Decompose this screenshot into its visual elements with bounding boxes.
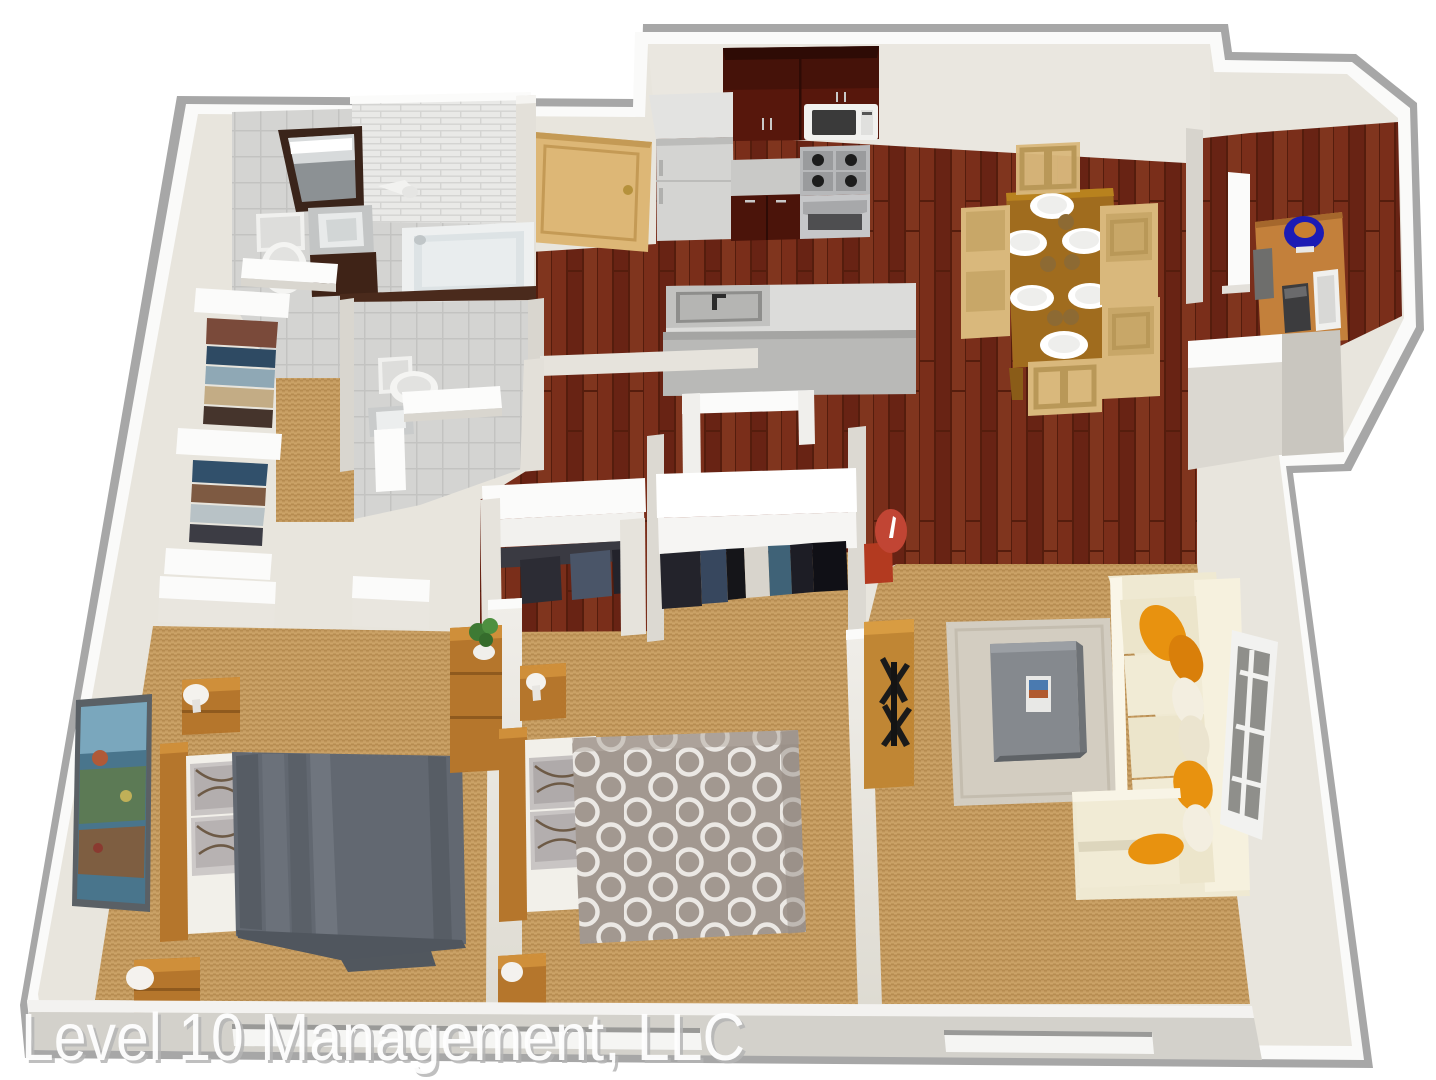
- svg-text:Level 10 Management, LLC: Level 10 Management, LLC: [21, 1000, 745, 1075]
